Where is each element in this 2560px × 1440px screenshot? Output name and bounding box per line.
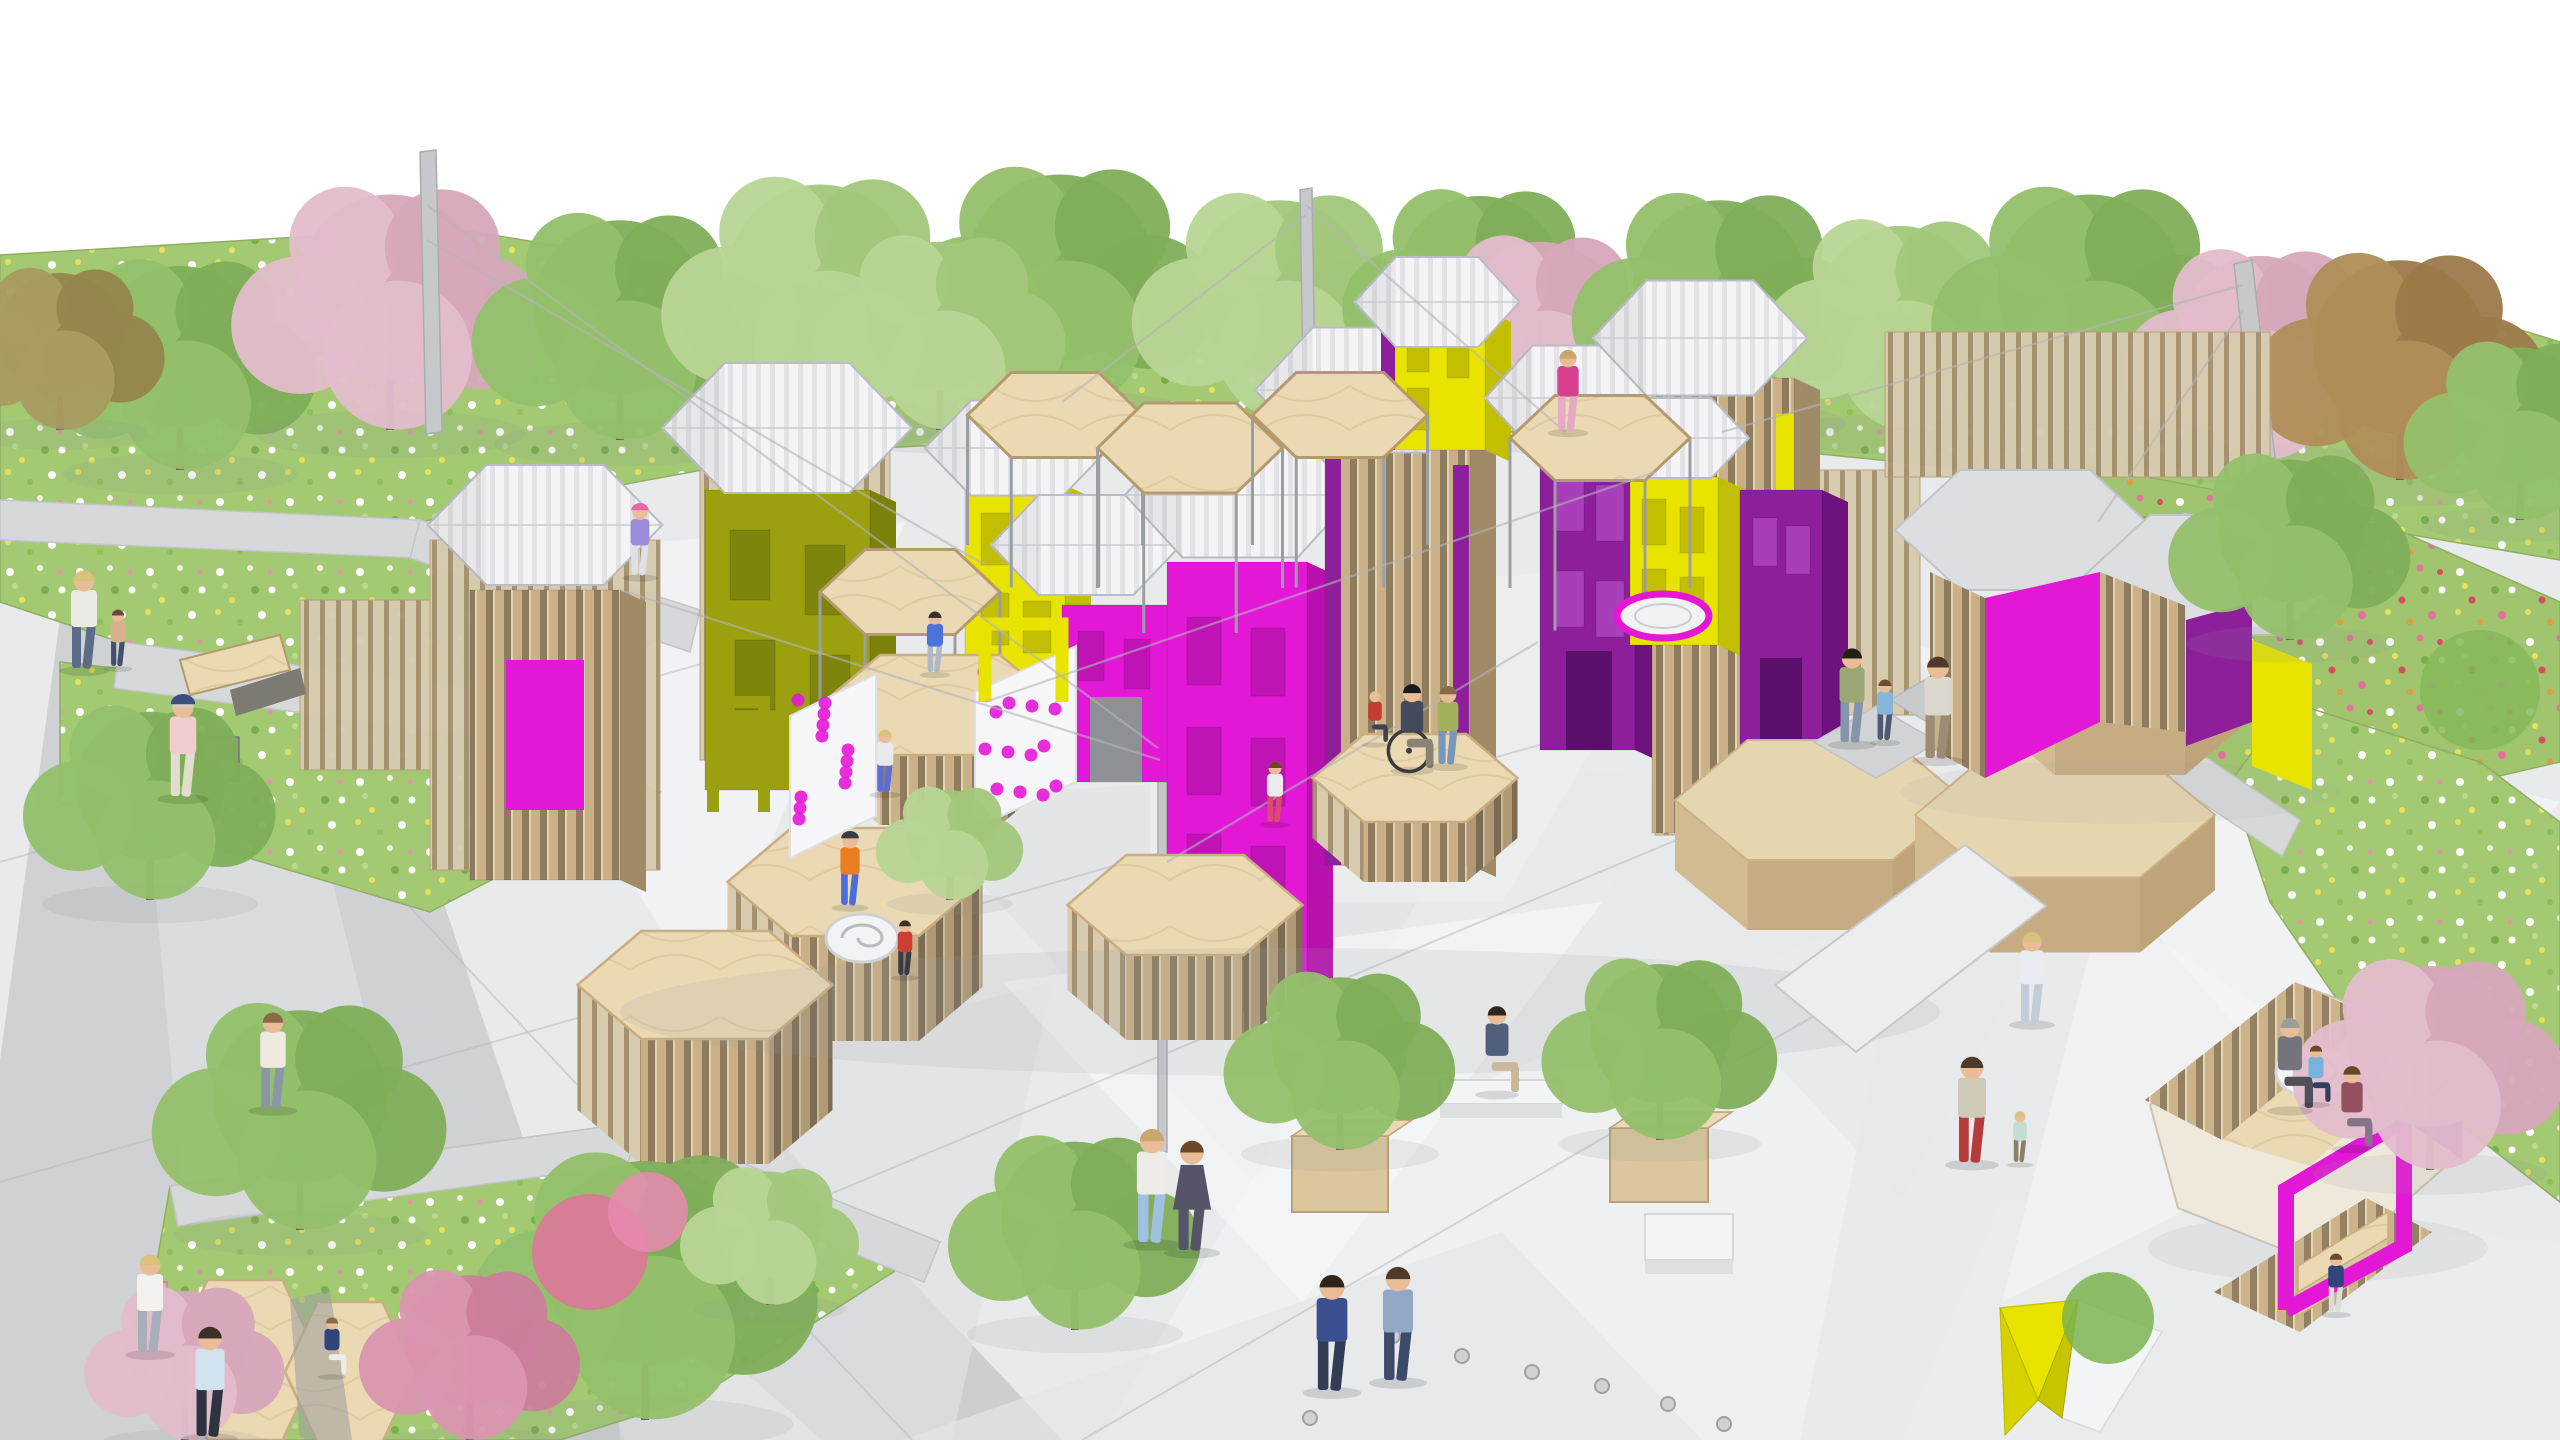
flower-bush xyxy=(2420,630,2540,750)
site-furniture xyxy=(1617,594,1709,638)
playground-plaza-rendering xyxy=(0,0,2560,1440)
play-platform xyxy=(1313,734,1518,882)
ground-light xyxy=(1303,1411,1317,1425)
site-furniture xyxy=(1645,1214,1733,1260)
ground-light xyxy=(1595,1379,1609,1393)
flower-bush xyxy=(2062,1272,2154,1364)
structure-detail xyxy=(2252,640,2312,790)
flower-bush xyxy=(608,1172,688,1252)
ground-light xyxy=(1661,1397,1675,1411)
site-furniture xyxy=(1440,1104,1562,1118)
tower-purple-right xyxy=(1740,490,1848,772)
ground-light xyxy=(1525,1365,1539,1379)
ground-light xyxy=(1717,1417,1731,1431)
wood-slat-fence xyxy=(300,600,430,770)
site-furniture xyxy=(1645,1260,1733,1274)
structure-detail xyxy=(826,914,898,962)
ground-light xyxy=(1455,1349,1469,1363)
rendering-canvas xyxy=(0,0,2560,1440)
structure-detail xyxy=(2186,602,2252,746)
